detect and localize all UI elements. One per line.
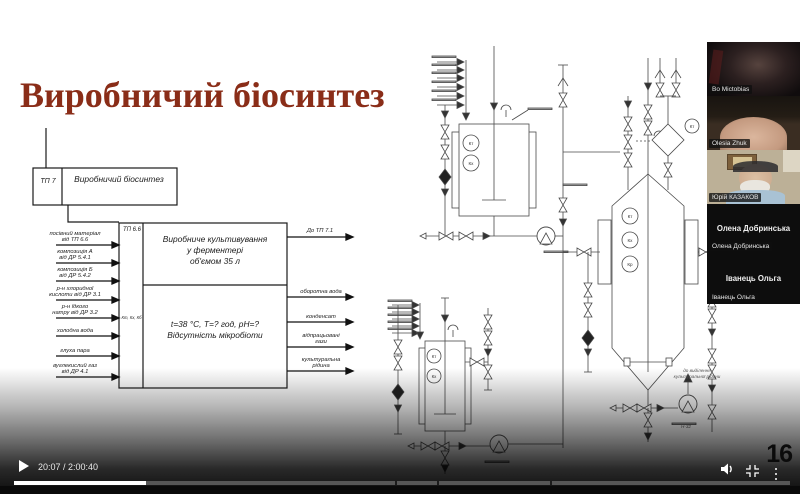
conditions-line2: Відсутність мікробіоти xyxy=(146,331,284,340)
instrument-tag: Кр xyxy=(627,262,633,267)
instrument-tag: Кт xyxy=(690,124,695,129)
flow-control-points: Кт, Кх, Кб xyxy=(119,316,144,321)
flow-input-label: композиція Авід ДР 5.4.1 xyxy=(34,249,116,262)
chapter-marker xyxy=(550,481,552,485)
headphones xyxy=(733,161,778,172)
participant-video-tile[interactable]: Олена Добринська Олена Добринська xyxy=(707,204,800,253)
participant-name-badge: Olesia Zhuk xyxy=(709,139,750,148)
flow-input-label: холодна вода xyxy=(34,328,116,334)
play-button[interactable] xyxy=(19,460,29,472)
window-light xyxy=(783,150,800,172)
slide-page-number: 16 xyxy=(752,440,792,469)
participant-video-tile[interactable]: Olesia Zhuk xyxy=(707,96,800,150)
time-display: 20:07 / 2:00:40 xyxy=(38,462,98,472)
flow-input-label: посівний матеріалвід ТП 6.6 xyxy=(34,231,116,244)
flow-output-label: культуральнарідина xyxy=(290,357,352,370)
process-line1: Виробниче культивування xyxy=(146,235,284,244)
pid-inoculator: Кт Кх xyxy=(388,298,563,474)
flow-block-tag: ТП 6.6 xyxy=(121,227,143,234)
pid-note-line2: культуральної рідини xyxy=(674,374,721,379)
flow-input-label: композиція Бвід ДР 5.4.2 xyxy=(34,267,116,280)
process-line2: у ферментері xyxy=(146,246,284,255)
flow-input-label: р-н хлоридноїкислоти від ДР 3.1 xyxy=(34,286,116,299)
participant-name-badge: Іванець Ольга xyxy=(709,293,758,302)
flow-parent-tag: ТП 7 xyxy=(36,178,60,186)
pid-note-line1: до виділення xyxy=(683,368,711,373)
participant-video-tile[interactable]: Юрій КАЗАКОВ xyxy=(707,150,800,204)
pid-production-fermenter: Кт Кх Кр xyxy=(582,58,716,442)
flow-output-arrows xyxy=(287,234,353,374)
flow-input-label: р-н їдкогонатру від ДР 3.2 xyxy=(34,304,116,317)
conditions-line1: t=38 °С, Т=? год, рН=? xyxy=(146,320,284,329)
instrument-tag: Кх xyxy=(469,161,475,166)
player-footer-bar xyxy=(0,486,800,494)
participant-video-tile[interactable]: Bo Mictobias xyxy=(707,42,800,96)
chapter-marker xyxy=(395,481,397,485)
slide-title: Виробничий біосинтез xyxy=(20,74,460,116)
participant-name-badge: Олена Добринська xyxy=(709,242,772,251)
progress-fill xyxy=(14,481,146,485)
participant-name-badge: Bo Mictobias xyxy=(709,85,752,94)
process-line3: об'ємом 35 л xyxy=(146,257,284,266)
flow-output-label: оборотна вода xyxy=(290,289,352,295)
chapter-marker xyxy=(437,481,439,485)
instrument-tag: Кх xyxy=(432,374,438,379)
video-player-frame: Кт Кх xyxy=(0,0,800,494)
participants-panel: Bo Mictobias Olesia Zhuk Юрій КАЗАКОВ Ол… xyxy=(707,42,800,304)
participant-video-tile[interactable]: Іванець Ольга Іванець Ольга xyxy=(707,253,800,304)
pid-pump-tag: Н-32 xyxy=(681,424,691,429)
flow-output-label: відпрацьованігази xyxy=(290,333,352,346)
flow-output-top-label: До ТП 7.1 xyxy=(292,228,348,234)
flow-input-label: глуха пара xyxy=(34,348,116,354)
progress-bar[interactable] xyxy=(14,481,790,485)
flow-parent-name: Виробничий біосинтез xyxy=(64,175,174,184)
volume-icon[interactable] xyxy=(720,462,736,476)
instrument-tag: Кх xyxy=(628,238,634,243)
instrument-tag: Кт xyxy=(432,354,437,359)
flow-output-label: конденсат xyxy=(290,314,352,320)
participant-name-badge: Юрій КАЗАКОВ xyxy=(709,193,761,202)
headphone-strap xyxy=(709,49,724,84)
flow-input-label: вуглекислий газвід ДР 4.1 xyxy=(34,363,116,376)
